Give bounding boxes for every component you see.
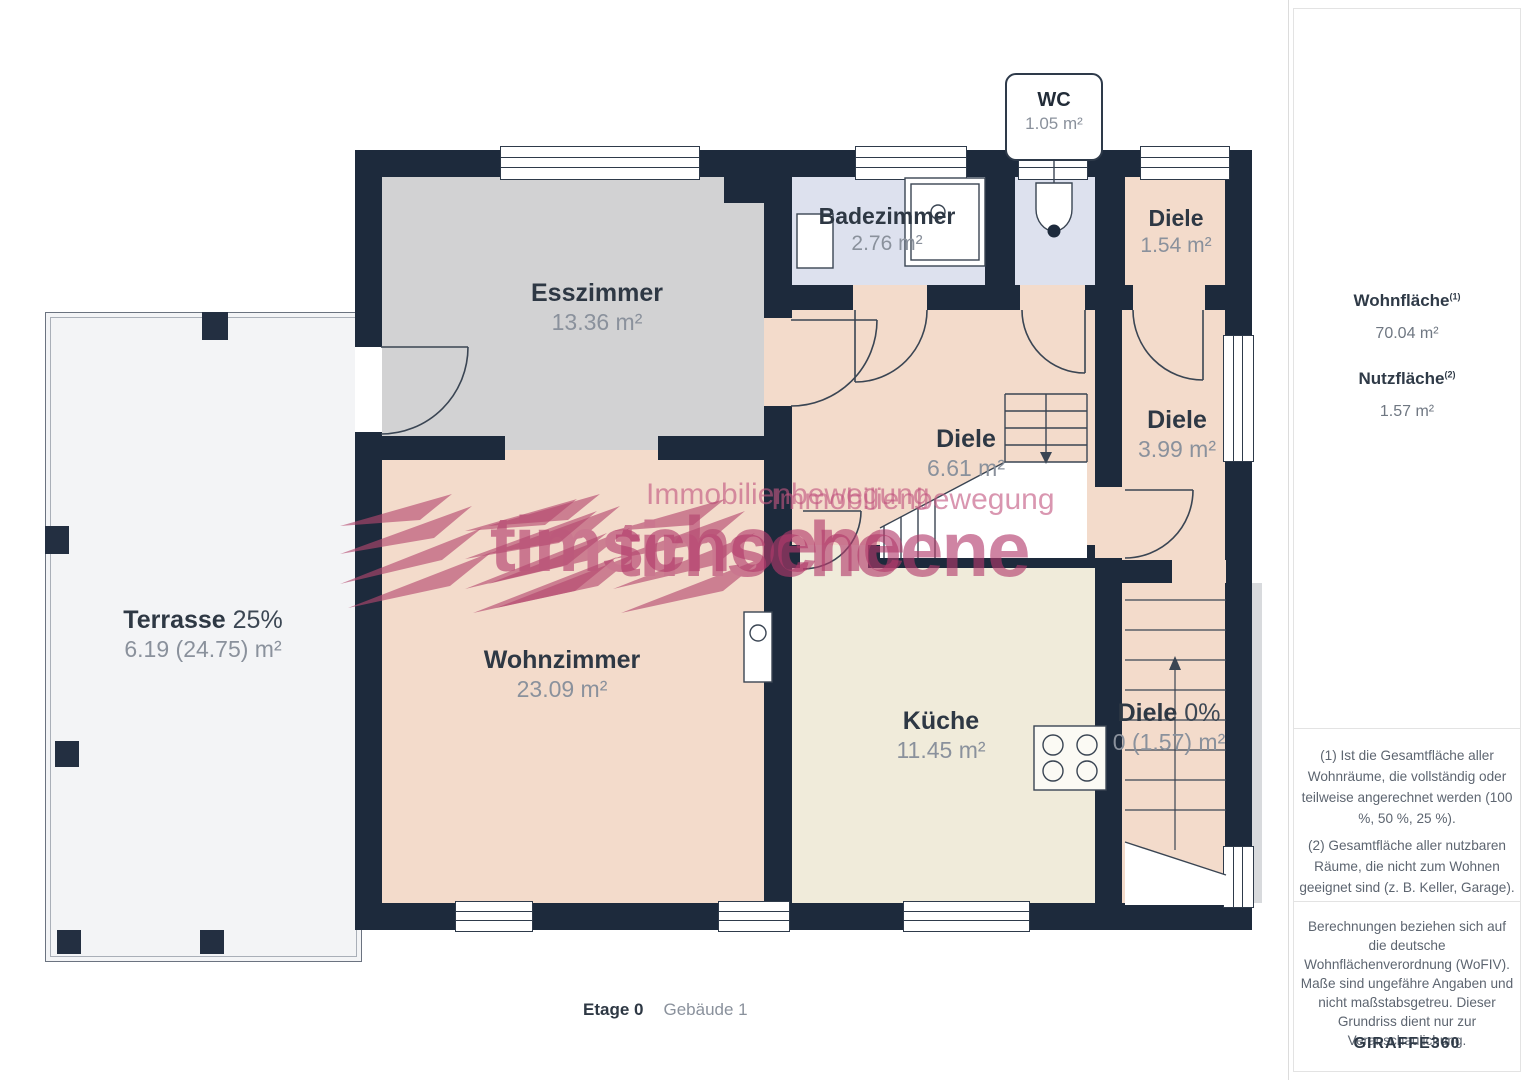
floorplan: Esszimmer 13.36 m² Badezimmer 2.76 m² Di… [0,0,1288,1080]
wohnflaeche-label: Wohnfläche(1) [1294,291,1520,311]
room-label-terrasse: Terrasse 25% 6.19 (24.75) m² [123,605,282,664]
sidebar-divider [1288,0,1289,1080]
room-label-badezimmer: Badezimmer 2.76 m² [819,203,956,257]
area-summary: Wohnfläche(1) 70.04 m² Nutzfläche(2) 1.5… [1294,291,1520,421]
nutzflaeche-value: 1.57 m² [1294,403,1520,421]
room-label-diele-4: Diele 0% 0 (1.57) m² [1113,698,1225,757]
footnote-1: (1) Ist die Gesamtfläche aller Wohnräume… [1294,745,1520,829]
room-label-diele-3: Diele 3.99 m² [1138,405,1216,464]
plan-vector-overlay [0,0,1288,1080]
summary-sidebar: Wohnfläche(1) 70.04 m² Nutzfläche(2) 1.5… [1293,8,1521,1072]
wc-callout: WC 1.05 m² [1005,73,1103,161]
section-divider [1294,728,1520,729]
radiator-icon [744,612,772,682]
stair-arrow-up [1169,656,1181,670]
stairwell-opening [880,462,1226,905]
room-label-esszimmer: Esszimmer 13.36 m² [531,278,663,337]
disclaimer-text: Berechnungen beziehen sich auf die deuts… [1294,917,1520,1050]
section-divider [1294,901,1520,902]
room-label-kueche: Küche 11.45 m² [896,706,985,765]
floor-caption: Etage 0 Gebäude 1 [583,1000,748,1020]
wohnflaeche-value: 70.04 m² [1294,325,1520,343]
stove-icon [1034,726,1106,790]
room-label-diele-1: Diele 1.54 m² [1140,205,1211,259]
room-label-wohnzimmer: Wohnzimmer 23.09 m² [484,645,641,704]
floorplan-page: Esszimmer 13.36 m² Badezimmer 2.76 m² Di… [0,0,1527,1080]
footnote-2: (2) Gesamtfläche aller nutzbaren Räume, … [1294,835,1520,898]
toilet-icon [1036,183,1072,238]
room-label-diele-2: Diele 6.61 m² [927,424,1005,483]
brand-logo: GIRAFFE360 [1294,1035,1520,1053]
nutzflaeche-label: Nutzfläche(2) [1294,369,1520,389]
